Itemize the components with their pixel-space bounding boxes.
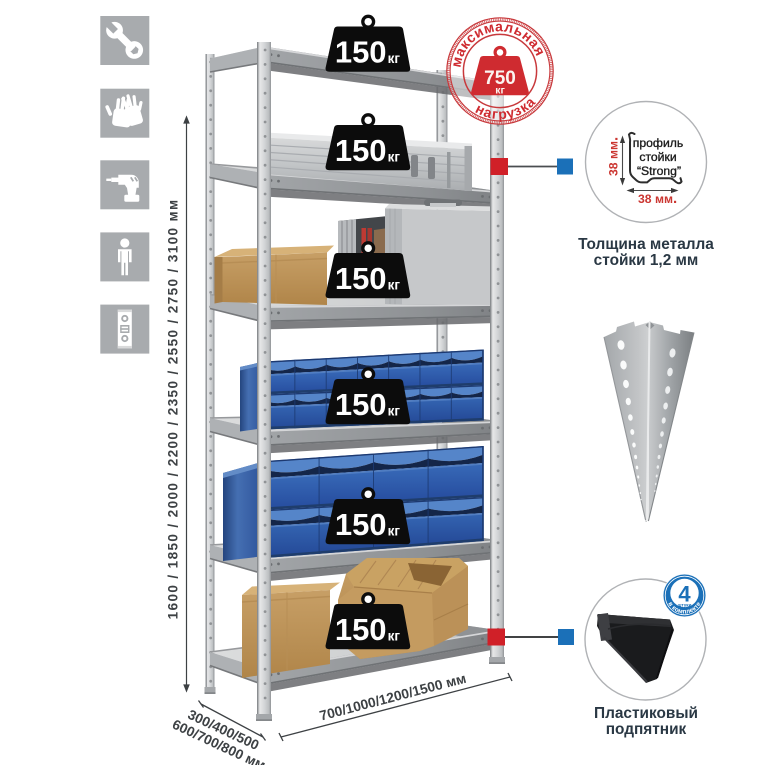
svg-text:кг: кг: [388, 150, 401, 165]
svg-text:Пластиковый: Пластиковый: [594, 705, 698, 722]
svg-text:кг: кг: [388, 51, 401, 66]
svg-text:“Strong”: “Strong”: [637, 164, 681, 178]
svg-text:150: 150: [335, 387, 387, 422]
svg-text:38 мм.: 38 мм.: [638, 190, 677, 207]
svg-text:кг: кг: [388, 278, 401, 293]
svg-text:штуки: штуки: [678, 603, 692, 608]
svg-text:700/1000/1200/1500 мм: 700/1000/1200/1500 мм: [318, 671, 468, 724]
svg-text:1600 / 1850 / 2000 / 2200 / 23: 1600 / 1850 / 2000 / 2200 / 2350 / 2550 …: [166, 199, 181, 620]
svg-text:150: 150: [335, 133, 387, 168]
svg-text:38 мм.: 38 мм.: [605, 137, 622, 176]
svg-text:профиль: профиль: [633, 136, 683, 150]
svg-text:стойки: стойки: [639, 150, 676, 164]
svg-text:150: 150: [335, 507, 387, 542]
svg-text:кг: кг: [495, 85, 505, 97]
svg-text:стойки 1,2 мм: стойки 1,2 мм: [594, 252, 699, 269]
svg-text:150: 150: [335, 35, 387, 70]
svg-text:кг: кг: [388, 524, 401, 539]
svg-text:кг: кг: [388, 404, 401, 419]
svg-text:кг: кг: [388, 629, 401, 644]
svg-text:150: 150: [335, 261, 387, 296]
svg-text:подпятник: подпятник: [606, 721, 687, 738]
svg-text:150: 150: [335, 612, 387, 647]
svg-text:Толщина металла: Толщина металла: [578, 236, 714, 253]
